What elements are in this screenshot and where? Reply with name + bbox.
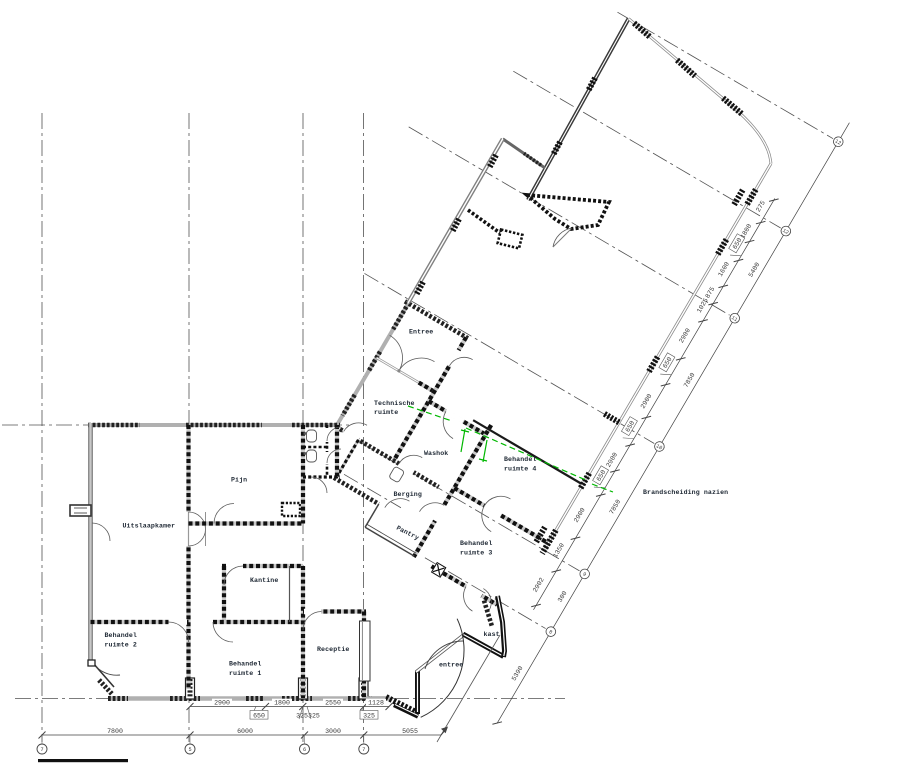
svg-text:ruimte 4: ruimte 4 (504, 466, 536, 473)
svg-text:kast: kast (484, 631, 500, 638)
svg-text:6: 6 (303, 747, 306, 753)
svg-text:Berging: Berging (394, 491, 422, 498)
svg-text:7: 7 (362, 747, 365, 753)
svg-text:Washok: Washok (424, 450, 448, 457)
svg-text:Behandel: Behandel (460, 540, 492, 547)
svg-text:Kantine: Kantine (250, 577, 278, 584)
svg-text:ruimte 3: ruimte 3 (460, 550, 492, 557)
svg-text:Receptie: Receptie (317, 646, 349, 653)
svg-text:6000: 6000 (237, 728, 253, 735)
svg-text:ruimte 2: ruimte 2 (105, 642, 137, 649)
svg-text:Brandscheiding nazien: Brandscheiding nazien (643, 489, 728, 496)
svg-text:Behandel: Behandel (105, 632, 137, 639)
svg-text:5055: 5055 (402, 728, 418, 735)
svg-text:1128: 1128 (368, 700, 384, 707)
svg-text:ruimte 1: ruimte 1 (229, 670, 261, 677)
svg-text:2900: 2900 (214, 700, 230, 707)
svg-text:Behandel: Behandel (229, 661, 261, 668)
svg-text:325325: 325325 (296, 712, 320, 719)
svg-text:Entree: Entree (409, 329, 433, 336)
svg-text:7800: 7800 (107, 728, 123, 735)
svg-text:2550: 2550 (325, 700, 341, 707)
svg-text:650: 650 (253, 712, 265, 719)
svg-text:1800: 1800 (274, 700, 290, 707)
svg-text:Uitslaapkamer: Uitslaapkamer (123, 523, 176, 530)
svg-text:Behandel: Behandel (504, 456, 536, 463)
svg-text:7: 7 (40, 747, 43, 753)
svg-text:entree: entree (439, 662, 463, 669)
svg-text:ruimte: ruimte (374, 409, 398, 416)
svg-text:3000: 3000 (325, 728, 341, 735)
svg-text:Pijn: Pijn (231, 477, 247, 484)
svg-text:325: 325 (363, 712, 375, 719)
svg-text:Technische: Technische (374, 400, 415, 407)
svg-text:5: 5 (188, 747, 191, 753)
